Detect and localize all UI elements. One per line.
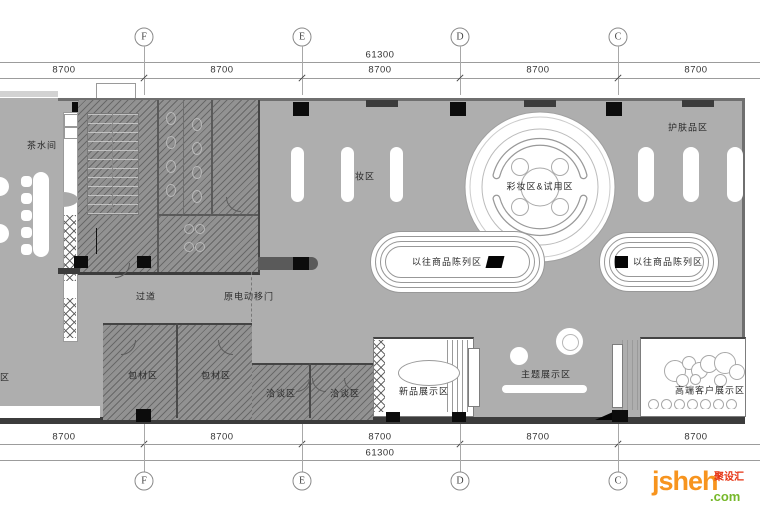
wc-sink — [184, 242, 194, 252]
display-shelf — [727, 147, 743, 202]
wall-segment — [524, 100, 556, 107]
logo-cn-text: 聚设汇 — [714, 468, 744, 483]
grid-line — [302, 424, 303, 472]
tea-table — [33, 172, 49, 257]
column — [293, 102, 309, 116]
dim-seg-top: 8700 — [526, 65, 549, 76]
theme-circle — [510, 347, 528, 365]
dim-line — [0, 78, 760, 79]
sink-fixture — [64, 127, 78, 139]
interior-wall — [157, 100, 159, 272]
area-label-tea-room: 茶水间 — [27, 142, 57, 151]
wall-bar — [258, 257, 318, 270]
side-panel — [468, 348, 480, 407]
grid-bubble-e-bottom: E — [293, 472, 312, 491]
dim-seg-top: 8700 — [368, 65, 391, 76]
prev-display-track-left: 以往商品陈列区 — [370, 231, 545, 293]
wall-segment — [682, 100, 714, 107]
dim-seg-bottom: 8700 — [368, 432, 391, 443]
track-ring: 以往商品陈列区 — [375, 236, 540, 288]
column — [74, 256, 88, 268]
area-label-theme-display: 主题展示区 — [521, 371, 571, 380]
chair — [21, 227, 32, 238]
area-label-new-product: 新品展示区 — [399, 388, 449, 397]
area-label-makeup-trial: 彩妆区&试用区 — [506, 183, 573, 192]
room-wall-hatch — [374, 340, 385, 412]
stair-arrow — [96, 228, 97, 254]
wc-sink — [195, 242, 205, 252]
room-divider — [309, 363, 311, 418]
grid-letter: F — [141, 476, 147, 487]
grid-letter: C — [615, 32, 622, 43]
column — [612, 410, 628, 422]
wall-segment — [366, 100, 398, 107]
area-label-prev-display: 以往商品陈列区 — [633, 258, 703, 267]
stair-divider — [112, 113, 113, 213]
wc-sink — [184, 224, 194, 234]
grid-line — [460, 46, 461, 95]
dim-total-bottom: 61300 — [366, 448, 395, 459]
display-table — [398, 360, 460, 386]
dim-seg-bottom: 8700 — [526, 432, 549, 443]
dim-line — [0, 460, 760, 461]
wc-fixture — [166, 160, 176, 173]
track-ring: 以往商品陈列区 — [385, 246, 530, 278]
wc-fixture — [166, 136, 176, 149]
area-label-sliding-door: 原电动移门 — [224, 293, 274, 302]
grid-bubble-c-top: C — [609, 28, 628, 47]
track-ring: 以往商品陈列区 — [380, 241, 535, 283]
ramp-triangle — [595, 412, 613, 420]
grid-bubble-e-top: E — [293, 28, 312, 47]
grid-line — [618, 46, 619, 95]
chair — [21, 176, 32, 187]
column — [386, 412, 400, 422]
display-marker-icon — [486, 256, 505, 268]
grid-letter: D — [456, 476, 463, 487]
display-shelf — [638, 147, 654, 202]
grid-letter: C — [615, 476, 622, 487]
bubble-circle — [729, 364, 745, 380]
grid-line — [144, 46, 145, 95]
area-label-meeting: 洽谈区 — [266, 390, 296, 399]
shelving-lines — [622, 340, 639, 410]
display-marker-icon — [615, 256, 628, 268]
area-label-skincare: 护肤品区 — [668, 124, 708, 133]
staircase — [87, 113, 139, 215]
sink-fixture — [64, 114, 78, 127]
dim-seg-top: 8700 — [210, 65, 233, 76]
interior-wall — [183, 100, 184, 216]
grid-letter: F — [141, 32, 147, 43]
area-label-packing: 包材区 — [201, 372, 231, 381]
track-ring: 以往商品陈列区 — [614, 247, 704, 277]
wc-fixture — [192, 190, 202, 203]
chair — [21, 193, 32, 204]
logo-brand-text: jsheh — [652, 466, 718, 497]
wc-fixture — [166, 112, 176, 125]
counter-bar — [644, 409, 745, 415]
area-label-meeting: 洽谈区 — [330, 390, 360, 399]
walkway-strip — [0, 91, 58, 97]
grid-line — [144, 424, 145, 472]
area-label-prev-display: 以往商品陈列区 — [412, 258, 482, 267]
grid-letter: D — [456, 32, 463, 43]
wc-fixture — [192, 166, 202, 179]
logo-tld-text: .com — [710, 489, 740, 504]
floor-plan: 61300 8700 8700 8700 8700 8700 F E D C 茶… — [0, 0, 760, 506]
dim-line — [0, 62, 760, 63]
grid-bubble-f-bottom: F — [135, 472, 154, 491]
display-shelf — [291, 147, 304, 202]
area-label-edge-partial: 区 — [0, 374, 10, 383]
dim-total-top: 61300 — [366, 50, 395, 61]
grid-letter: E — [299, 32, 305, 43]
dim-seg-top: 8700 — [52, 65, 75, 76]
track-ring: 以往商品陈列区 — [604, 237, 714, 287]
display-shelf — [341, 147, 354, 202]
theme-counter — [502, 385, 587, 393]
wc-fixture — [192, 118, 202, 131]
grid-letter: E — [299, 476, 305, 487]
dim-seg-bottom: 8700 — [684, 432, 707, 443]
column — [452, 412, 466, 422]
room-divider — [176, 323, 178, 418]
wc-fixture — [192, 142, 202, 155]
track-ring: 以往商品陈列区 — [609, 242, 709, 282]
wc-sink — [195, 224, 205, 234]
sliding-door-line — [251, 272, 252, 322]
column — [293, 257, 309, 270]
area-label-vip-display: 高端客户展示区 — [675, 387, 745, 396]
dim-seg-top: 8700 — [684, 65, 707, 76]
interior-wall — [157, 214, 258, 216]
chair — [21, 210, 32, 221]
column — [136, 409, 151, 422]
grid-line — [618, 424, 619, 472]
interior-wall — [211, 100, 213, 216]
jsheh-logo: jsheh 聚设汇 .com — [650, 466, 758, 504]
grid-line — [460, 424, 461, 472]
area-label-corridor: 过道 — [136, 293, 156, 302]
counter — [0, 406, 100, 418]
side-panel — [612, 344, 623, 408]
display-shelf — [683, 147, 699, 202]
bubble-circle — [690, 374, 701, 385]
area-label-packing: 包材区 — [128, 372, 158, 381]
grid-bubble-f-top: F — [135, 28, 154, 47]
grid-bubble-d-top: D — [451, 28, 470, 47]
prev-display-track-right: 以往商品陈列区 — [599, 232, 719, 292]
grid-bubble-c-bottom: C — [609, 472, 628, 491]
display-shelf — [390, 147, 403, 202]
grid-bubble-d-bottom: D — [451, 472, 470, 491]
grid-line — [302, 46, 303, 95]
chair — [21, 244, 32, 255]
column — [137, 256, 151, 268]
wc-fixture — [166, 184, 176, 197]
theme-circle-inner — [562, 334, 579, 351]
wall-segment — [58, 268, 80, 274]
dim-seg-bottom: 8700 — [210, 432, 233, 443]
dim-seg-bottom: 8700 — [52, 432, 75, 443]
dim-line — [0, 444, 760, 445]
partition-hatch — [64, 298, 76, 338]
